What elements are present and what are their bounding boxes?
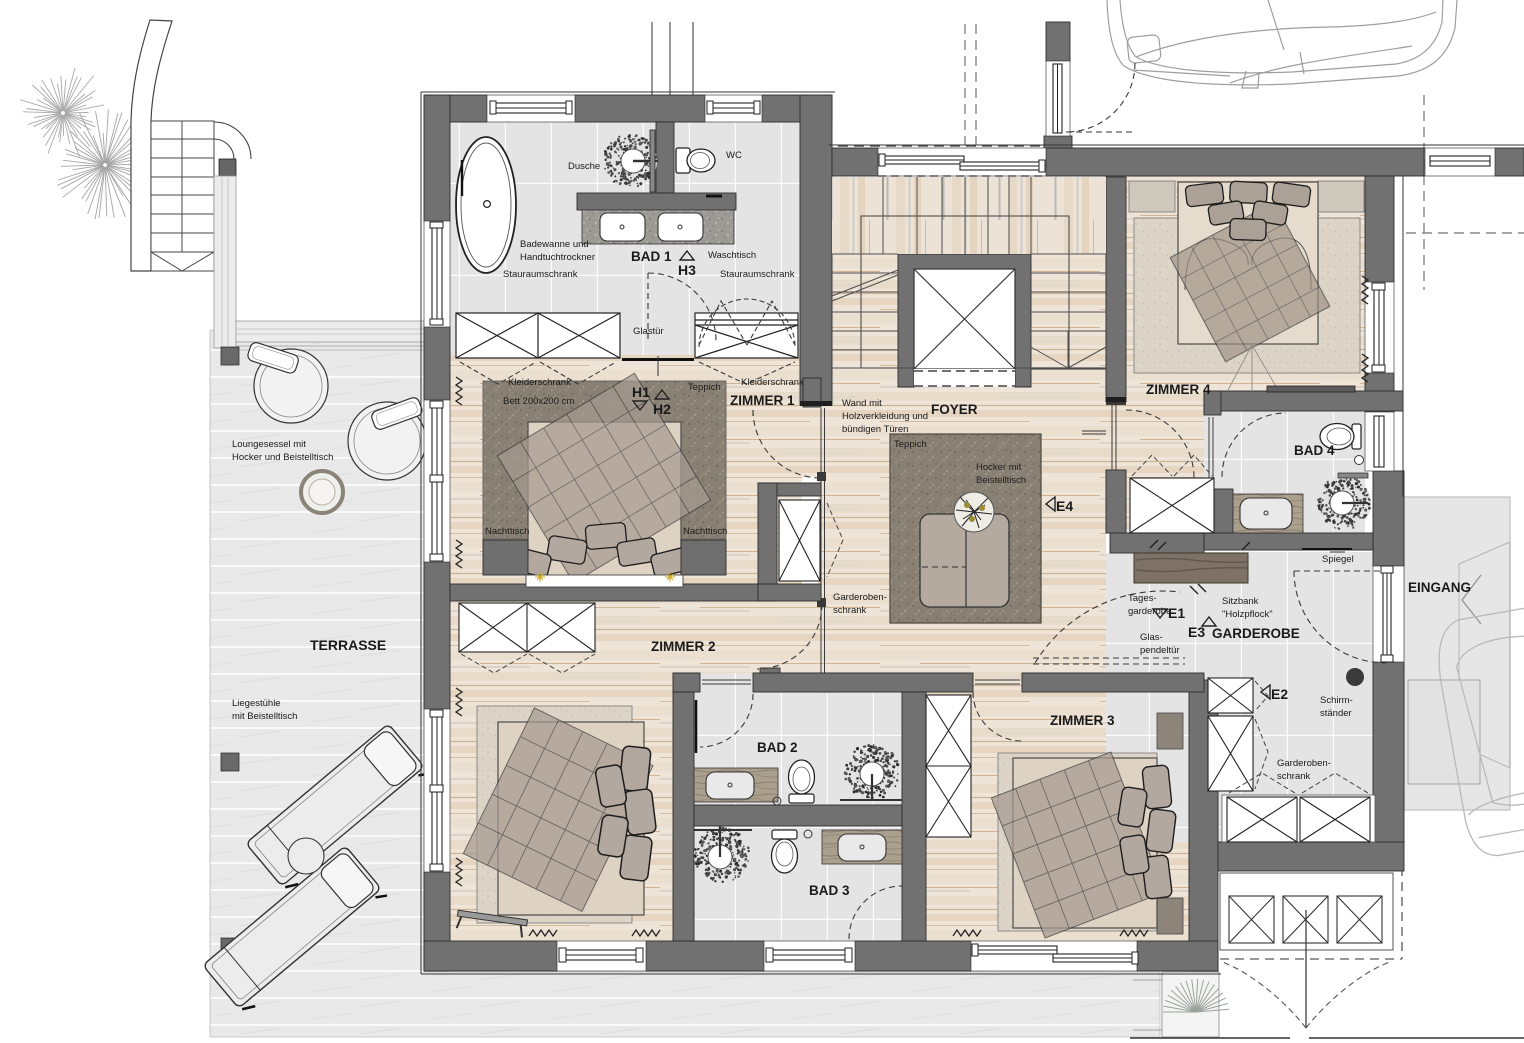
- svg-text:Sitzbank: Sitzbank: [1222, 596, 1259, 607]
- svg-text:Schirm-: Schirm-: [1320, 695, 1353, 706]
- svg-text:E1: E1: [1168, 605, 1185, 621]
- svg-text:Nachttisch: Nachttisch: [683, 526, 727, 537]
- svg-text:ZIMMER 2: ZIMMER 2: [651, 639, 716, 654]
- svg-text:GARDEROBE: GARDEROBE: [1212, 626, 1300, 641]
- svg-text:Liegestühle: Liegestühle: [232, 698, 281, 709]
- svg-text:BAD 3: BAD 3: [809, 883, 850, 898]
- svg-text:E2: E2: [1271, 686, 1288, 702]
- svg-text:pendeltür: pendeltür: [1140, 645, 1180, 656]
- svg-text:mit Beistelltisch: mit Beistelltisch: [232, 711, 297, 722]
- svg-text:Wand mit: Wand mit: [842, 398, 882, 409]
- svg-text:ZIMMER 3: ZIMMER 3: [1050, 713, 1115, 728]
- svg-text:ZIMMER 1: ZIMMER 1: [730, 393, 795, 408]
- svg-text:Waschtisch: Waschtisch: [708, 250, 756, 261]
- svg-text:Hocker mit: Hocker mit: [976, 462, 1022, 473]
- svg-text:schrank: schrank: [1277, 771, 1311, 782]
- svg-text:Glas-: Glas-: [1140, 632, 1163, 643]
- svg-text:Dusche: Dusche: [568, 161, 600, 172]
- svg-text:Stauraumschrank: Stauraumschrank: [720, 269, 795, 280]
- svg-text:"Holzpflock": "Holzpflock": [1222, 609, 1273, 620]
- svg-text:Hocker und Beistelltisch: Hocker und Beistelltisch: [232, 452, 333, 463]
- svg-text:Holzverkleidung und: Holzverkleidung und: [842, 411, 928, 422]
- svg-text:bündigen Türen: bündigen Türen: [842, 424, 908, 435]
- svg-text:BAD 1: BAD 1: [631, 249, 672, 264]
- svg-text:Bett 200x200 cm: Bett 200x200 cm: [503, 396, 574, 407]
- svg-text:Kleiderschrank: Kleiderschrank: [508, 377, 571, 388]
- svg-text:TERRASSE: TERRASSE: [310, 637, 386, 653]
- svg-text:Garderoben-: Garderoben-: [833, 592, 887, 603]
- svg-text:Loungesessel mit: Loungesessel mit: [232, 439, 306, 450]
- svg-text:Glastür: Glastür: [633, 326, 664, 337]
- svg-text:H2: H2: [653, 401, 671, 417]
- svg-text:H1: H1: [632, 384, 650, 400]
- svg-text:Kleiderschrank: Kleiderschrank: [741, 377, 804, 388]
- svg-text:Handtuchtrockner: Handtuchtrockner: [520, 252, 595, 263]
- svg-text:Garderoben-: Garderoben-: [1277, 758, 1331, 769]
- svg-text:Teppich: Teppich: [894, 439, 927, 450]
- svg-text:Stauraumschrank: Stauraumschrank: [503, 269, 578, 280]
- svg-text:BAD 4: BAD 4: [1294, 443, 1335, 458]
- svg-text:ständer: ständer: [1320, 708, 1352, 719]
- svg-text:Spiegel: Spiegel: [1322, 554, 1354, 565]
- svg-text:H3: H3: [678, 262, 696, 278]
- svg-text:EINGANG: EINGANG: [1408, 580, 1471, 595]
- svg-text:FOYER: FOYER: [931, 402, 978, 417]
- svg-text:Badewanne und: Badewanne und: [520, 239, 589, 250]
- svg-text:schrank: schrank: [833, 605, 867, 616]
- svg-text:E3: E3: [1188, 624, 1205, 640]
- svg-text:Beistelltisch: Beistelltisch: [976, 475, 1026, 486]
- svg-text:Teppich: Teppich: [688, 382, 721, 393]
- svg-text:ZIMMER 4: ZIMMER 4: [1146, 382, 1211, 397]
- svg-text:BAD 2: BAD 2: [757, 740, 798, 755]
- svg-text:Nachttisch: Nachttisch: [485, 526, 529, 537]
- svg-text:WC: WC: [726, 150, 742, 161]
- svg-text:E4: E4: [1056, 498, 1073, 514]
- svg-text:Tages-: Tages-: [1128, 593, 1157, 604]
